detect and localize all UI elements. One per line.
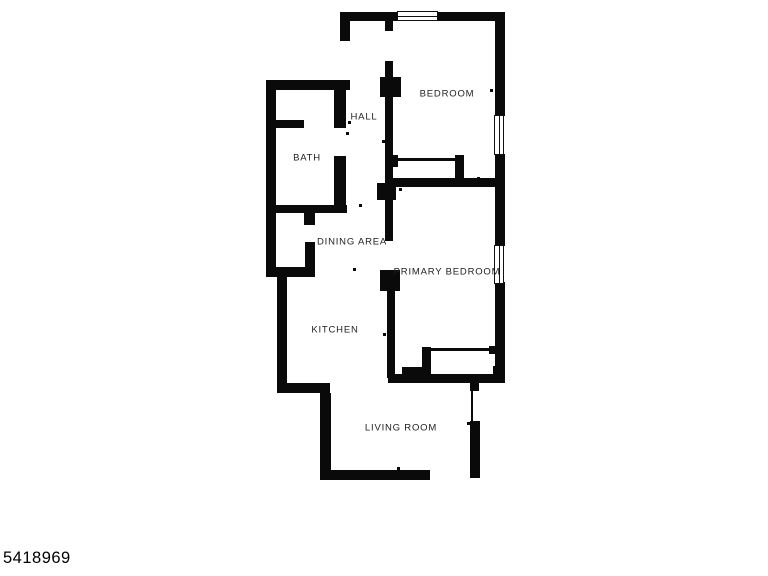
room-label-hall: HALL [351,112,378,123]
wall-alcove-bottom-wall [266,267,314,277]
floor-plan: BEDROOMHALLBATHDINING AREAPRIMARY BEDROO… [0,0,768,576]
wall-hall-wall-block-upper [380,77,401,97]
living-right-opening-line [471,391,473,422]
wall-primary-corner-block [493,366,504,383]
wall-bath-bottom-wall [266,205,347,213]
bedroom-right-window-window-icon [494,115,504,155]
door-marker-dot [346,132,349,135]
bedroom-closet-door-line [397,158,456,161]
door-marker-dot [397,467,400,470]
door-marker-dot [490,89,493,92]
floor-plan-page: BEDROOMHALLBATHDINING AREAPRIMARY BEDROO… [0,0,768,576]
wall-hall-bedroom-wall-stub [385,19,393,31]
door-marker-dot [382,140,385,143]
wall-bath-inner-wall [268,120,304,128]
room-label-living-room: LIVING ROOM [365,423,437,434]
wall-hall-bedroom-wall-upper [385,61,393,78]
wall-kitchen-primary-wall [387,291,395,378]
wall-right-wall-upper [495,12,505,116]
door-marker-dot [282,334,285,337]
door-marker-dot [383,333,386,336]
wall-alcove-right-wall-upper [304,213,315,225]
listing-id: 5418969 [3,549,71,568]
room-label-primary-bedroom: PRIMARY BEDROOM [394,267,501,278]
wall-bath-left-wall [266,80,276,277]
door-marker-dot [490,16,493,19]
bedroom-top-window-window-icon [397,11,438,21]
door-marker-dot [306,383,309,386]
wall-kitchen-jog-wall [277,383,330,393]
wall-bath-hall-wall-lower [334,156,346,212]
wall-bedroom-closet-wall-right [455,155,464,184]
door-marker-dot [477,177,480,180]
wall-primary-step-block [402,367,423,383]
door-marker-dot [353,268,356,271]
room-label-dining-area: DINING AREA [317,237,387,248]
wall-living-bottom-wall [321,470,430,480]
room-label-kitchen: KITCHEN [311,325,358,336]
wall-living-left-wall [320,393,331,480]
door-marker-dot [362,18,365,21]
wall-primary-closet-stub-right [489,346,496,354]
primary-closet-door-line [431,348,490,351]
window-mullion [499,116,500,154]
door-marker-dot [399,188,402,191]
wall-bath-hall-wall-upper [334,88,346,128]
wall-bedroom-divider-wall [385,178,504,187]
wall-upper-left-corner-wall [340,12,350,41]
room-label-bath: BATH [293,153,321,164]
wall-hall-bedroom-wall-main [385,97,393,184]
room-label-bedroom: BEDROOM [420,89,475,100]
wall-living-right-stub [470,383,479,391]
window-mullion [398,16,437,17]
wall-right-wall-middle [495,154,505,246]
wall-dining-wall-upper [385,200,393,241]
door-marker-dot [359,204,362,207]
primary-right-window-window-icon [494,245,504,284]
wall-living-right-wall [470,421,480,478]
wall-bedroom-closet-stub-left [390,155,398,167]
wall-kitchen-left-wall [277,277,287,388]
door-marker-dot [467,422,470,425]
wall-primary-closet-wall-left [422,347,431,378]
